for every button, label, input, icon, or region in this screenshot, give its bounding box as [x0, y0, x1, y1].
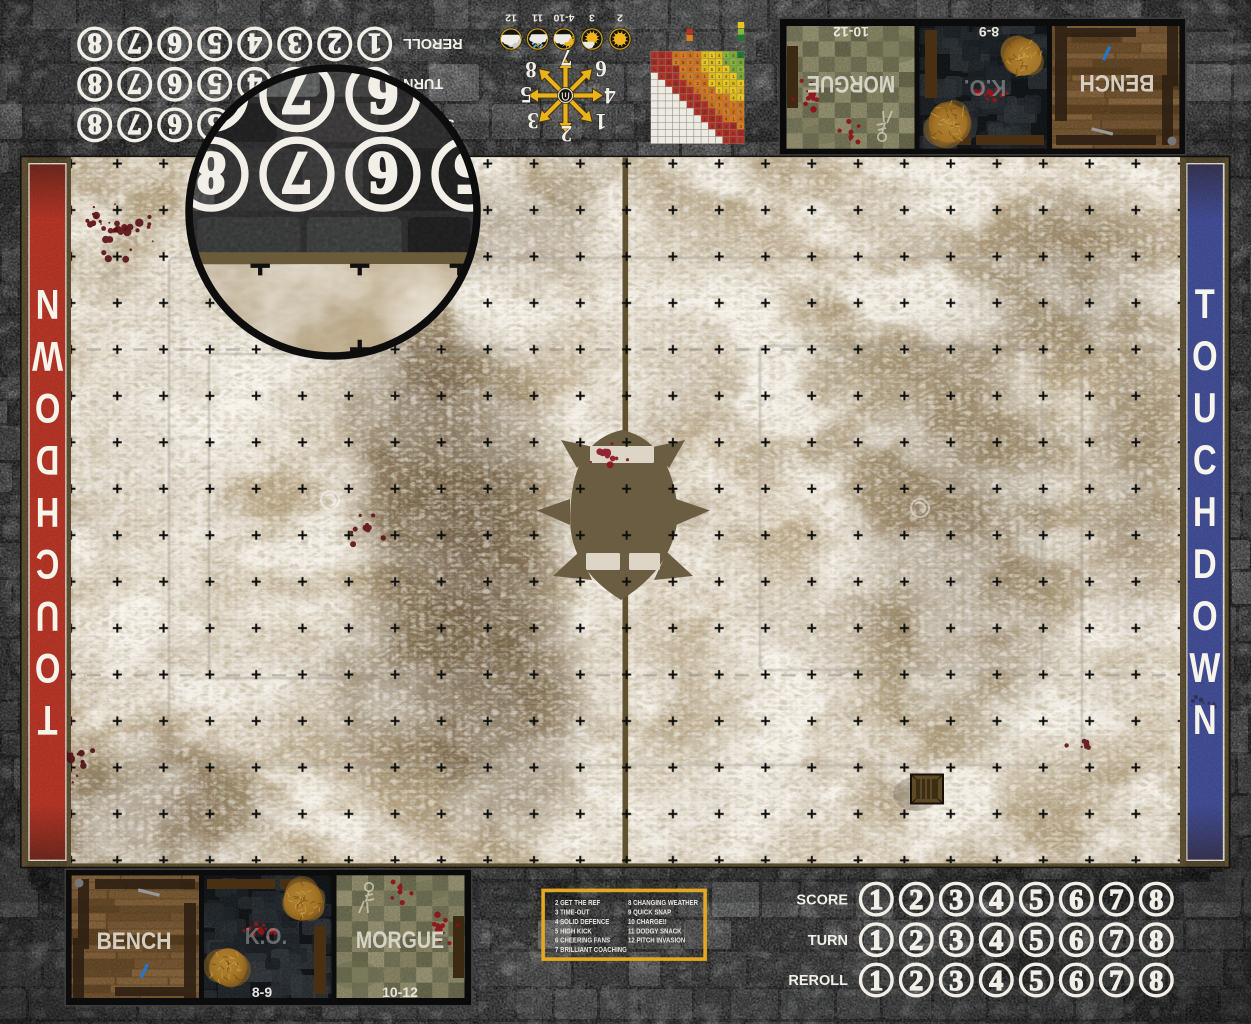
svg-text:1: 1: [682, 95, 685, 100]
svg-text:D: D: [1193, 540, 1217, 587]
svg-text:5: 5: [1029, 885, 1043, 916]
svg-text:SCORE: SCORE: [796, 892, 848, 908]
svg-text:6: 6: [718, 81, 721, 86]
svg-text:3: 3: [703, 103, 706, 108]
svg-text:2: 2: [909, 885, 923, 916]
svg-text:3 TIME-OUT: 3 TIME-OUT: [555, 909, 590, 917]
svg-text:6: 6: [732, 81, 735, 86]
svg-text:6: 6: [725, 103, 728, 108]
svg-text:6: 6: [718, 124, 721, 129]
svg-text:3: 3: [732, 103, 735, 108]
svg-text:8-9: 8-9: [252, 984, 272, 1000]
svg-text:4: 4: [604, 83, 616, 108]
svg-text:5: 5: [725, 110, 728, 115]
svg-text:3: 3: [732, 60, 735, 65]
svg-text:7 BRILLIANT COACHING: 7 BRILLIANT COACHING: [555, 946, 627, 954]
svg-text:4: 4: [739, 74, 742, 79]
svg-text:2: 2: [689, 67, 692, 72]
svg-text:4: 4: [732, 95, 735, 100]
svg-text:3: 3: [739, 81, 742, 86]
svg-text:6: 6: [739, 103, 742, 108]
svg-text:5: 5: [732, 131, 735, 136]
svg-text:2: 2: [561, 121, 573, 146]
svg-text:3: 3: [725, 81, 728, 86]
svg-text:6: 6: [696, 60, 699, 65]
svg-text:6: 6: [711, 103, 714, 108]
svg-text:3: 3: [718, 60, 721, 65]
svg-text:4: 4: [711, 117, 714, 122]
svg-text:5: 5: [668, 67, 671, 72]
svg-text:5: 5: [689, 88, 692, 93]
svg-text:6: 6: [732, 124, 735, 129]
svg-text:2: 2: [660, 67, 663, 72]
svg-text:8: 8: [88, 108, 102, 139]
svg-text:T: T: [38, 697, 58, 744]
svg-text:6: 6: [696, 103, 699, 108]
svg-text:MORGUE: MORGUE: [807, 70, 895, 98]
svg-text:8 CHANGING WEATHER: 8 CHANGING WEATHER: [628, 900, 698, 908]
svg-text:1: 1: [869, 966, 883, 997]
svg-text:6: 6: [739, 60, 742, 65]
svg-text:4 SOLID DEFENCE: 4 SOLID DEFENCE: [555, 918, 610, 926]
svg-text:REROLL: REROLL: [788, 973, 848, 989]
svg-text:W: W: [32, 333, 63, 380]
svg-text:3: 3: [668, 81, 671, 86]
svg-text:1: 1: [711, 95, 714, 100]
svg-text:6: 6: [595, 56, 607, 81]
svg-text:5: 5: [739, 110, 742, 115]
svg-text:5: 5: [725, 67, 728, 72]
svg-text:1: 1: [718, 74, 721, 79]
svg-text:6: 6: [668, 60, 671, 65]
svg-text:3: 3: [711, 124, 714, 129]
svg-text:12: 12: [505, 11, 517, 23]
svg-text:1: 1: [696, 95, 699, 100]
svg-text:4: 4: [703, 95, 706, 100]
svg-text:5: 5: [711, 67, 714, 72]
svg-text:7: 7: [1109, 926, 1123, 957]
svg-text:BENCH: BENCH: [1080, 70, 1155, 98]
svg-text:4: 4: [732, 53, 735, 58]
svg-text:5: 5: [711, 110, 714, 115]
svg-text:D: D: [36, 437, 60, 484]
svg-text:U: U: [1193, 384, 1217, 431]
svg-text:5: 5: [732, 88, 735, 93]
svg-text:6: 6: [168, 68, 182, 99]
svg-text:3: 3: [689, 103, 692, 108]
svg-text:2: 2: [909, 926, 923, 957]
svg-text:C: C: [36, 541, 60, 588]
svg-text:2: 2: [732, 110, 735, 115]
svg-text:3: 3: [660, 60, 663, 65]
svg-text:1: 1: [660, 74, 663, 79]
svg-text:1: 1: [732, 117, 735, 122]
svg-text:1: 1: [725, 95, 728, 100]
svg-text:1: 1: [696, 53, 699, 58]
svg-text:6: 6: [368, 139, 398, 206]
svg-text:4: 4: [718, 53, 721, 58]
svg-text:O: O: [35, 385, 60, 432]
svg-text:1: 1: [869, 885, 883, 916]
svg-text:2: 2: [696, 88, 699, 93]
svg-text:3: 3: [949, 966, 963, 997]
svg-text:3: 3: [949, 885, 963, 916]
svg-text:1: 1: [732, 74, 735, 79]
svg-text:2: 2: [703, 110, 706, 115]
svg-text:10-12: 10-12: [382, 984, 418, 1000]
svg-text:5: 5: [675, 88, 678, 93]
svg-text:2: 2: [682, 88, 685, 93]
svg-text:BENCH: BENCH: [97, 926, 172, 954]
svg-text:6: 6: [711, 60, 714, 65]
svg-text:4: 4: [725, 74, 728, 79]
svg-text:4: 4: [668, 74, 671, 79]
svg-text:2: 2: [725, 131, 728, 136]
svg-text:O: O: [35, 645, 60, 692]
svg-text:U: U: [36, 593, 60, 640]
svg-text:5: 5: [208, 27, 222, 58]
svg-text:5: 5: [1029, 966, 1043, 997]
svg-text:7: 7: [1109, 966, 1123, 997]
svg-text:8: 8: [1149, 926, 1163, 957]
svg-text:7: 7: [561, 45, 573, 70]
svg-text:2: 2: [732, 67, 735, 72]
svg-text:2: 2: [703, 67, 706, 72]
svg-text:3: 3: [675, 60, 678, 65]
svg-text:5: 5: [682, 67, 685, 72]
svg-text:6: 6: [689, 81, 692, 86]
svg-text:5: 5: [653, 67, 656, 72]
svg-text:6: 6: [653, 60, 656, 65]
svg-text:2: 2: [739, 131, 742, 136]
svg-text:7: 7: [128, 108, 142, 139]
svg-text:6: 6: [682, 60, 685, 65]
svg-text:5: 5: [703, 88, 706, 93]
svg-text:4: 4: [660, 53, 663, 58]
svg-text:5: 5: [520, 82, 532, 107]
svg-text:1: 1: [725, 138, 728, 143]
svg-text:O: O: [1192, 592, 1217, 639]
svg-text:5: 5: [739, 67, 742, 72]
svg-text:2: 2: [711, 88, 714, 93]
svg-text:4: 4: [689, 95, 692, 100]
svg-text:6: 6: [168, 27, 182, 58]
svg-text:7: 7: [1109, 885, 1123, 916]
svg-text:1: 1: [682, 53, 685, 58]
svg-text:6: 6: [168, 108, 182, 139]
svg-text:1: 1: [869, 926, 883, 957]
svg-text:4: 4: [675, 53, 678, 58]
svg-text:1: 1: [653, 53, 656, 58]
svg-text:2: 2: [739, 88, 742, 93]
svg-text:W: W: [1189, 644, 1220, 691]
svg-text:8: 8: [1149, 885, 1163, 916]
svg-text:5: 5: [696, 67, 699, 72]
svg-text:5 HIGH KICK: 5 HIGH KICK: [555, 928, 592, 936]
svg-text:7: 7: [128, 68, 142, 99]
svg-text:3: 3: [288, 27, 302, 58]
svg-text:7: 7: [282, 139, 312, 206]
svg-text:5: 5: [718, 88, 721, 93]
svg-text:3: 3: [703, 60, 706, 65]
svg-text:1: 1: [703, 117, 706, 122]
svg-text:TURN: TURN: [808, 933, 848, 949]
svg-text:3: 3: [725, 124, 728, 129]
svg-text:2: 2: [617, 11, 623, 23]
svg-text:4: 4: [718, 95, 721, 100]
svg-text:11: 11: [532, 11, 543, 23]
svg-text:6 CHEERING FANS: 6 CHEERING FANS: [555, 937, 610, 945]
svg-text:1: 1: [739, 138, 742, 143]
svg-text:H: H: [36, 489, 60, 536]
svg-text:2: 2: [328, 27, 342, 58]
svg-text:1: 1: [725, 53, 728, 58]
svg-text:3: 3: [739, 124, 742, 129]
svg-text:4-10: 4-10: [553, 11, 574, 23]
svg-text:5: 5: [208, 68, 222, 99]
svg-text:4: 4: [248, 27, 262, 58]
svg-text:2 GET THE REF: 2 GET THE REF: [555, 900, 600, 908]
svg-text:4: 4: [696, 74, 699, 79]
svg-text:2: 2: [675, 67, 678, 72]
svg-text:1: 1: [675, 74, 678, 79]
svg-text:12 PITCH INVASION: 12 PITCH INVASION: [628, 937, 685, 945]
svg-text:9 QUICK SNAP: 9 QUICK SNAP: [628, 909, 672, 917]
svg-text:5: 5: [696, 110, 699, 115]
svg-text:11 DODGY SNACK: 11 DODGY SNACK: [628, 928, 682, 936]
svg-text:REROLL: REROLL: [403, 35, 463, 51]
svg-text:4: 4: [725, 117, 728, 122]
svg-text:5: 5: [718, 131, 721, 136]
svg-text:4: 4: [989, 926, 1003, 957]
svg-text:6: 6: [703, 81, 706, 86]
svg-text:1: 1: [668, 53, 671, 58]
svg-text:C: C: [1193, 436, 1217, 483]
svg-text:4: 4: [703, 53, 706, 58]
svg-text:1: 1: [689, 74, 692, 79]
svg-text:MORGUE: MORGUE: [356, 926, 444, 954]
svg-text:6: 6: [725, 60, 728, 65]
svg-text:N: N: [36, 281, 60, 328]
svg-text:K.O.: K.O.: [964, 75, 1007, 101]
svg-text:1: 1: [739, 95, 742, 100]
svg-text:1: 1: [368, 27, 382, 58]
svg-text:10 CHARGE!!: 10 CHARGE!!: [628, 918, 667, 926]
svg-text:H: H: [1193, 488, 1217, 535]
svg-text:2: 2: [909, 966, 923, 997]
svg-text:6: 6: [675, 81, 678, 86]
svg-text:8: 8: [525, 57, 537, 82]
svg-text:O: O: [1192, 332, 1217, 379]
svg-text:5: 5: [1029, 926, 1043, 957]
svg-text:4: 4: [732, 138, 735, 143]
svg-text:3: 3: [711, 81, 714, 86]
svg-text:3: 3: [689, 60, 692, 65]
svg-text:1: 1: [711, 53, 714, 58]
svg-text:4: 4: [989, 966, 1003, 997]
svg-text:7: 7: [128, 27, 142, 58]
svg-text:3: 3: [696, 81, 699, 86]
svg-text:4: 4: [739, 117, 742, 122]
svg-text:8: 8: [88, 27, 102, 58]
svg-text:1: 1: [595, 109, 607, 134]
svg-text:N: N: [1193, 696, 1217, 743]
svg-text:4: 4: [689, 53, 692, 58]
svg-text:4: 4: [711, 74, 714, 79]
svg-text:8: 8: [88, 68, 102, 99]
svg-text:3: 3: [589, 11, 595, 23]
svg-text:4: 4: [682, 74, 685, 79]
svg-text:6: 6: [1069, 885, 1083, 916]
svg-text:6: 6: [1069, 966, 1083, 997]
svg-text:K.O.: K.O.: [245, 923, 288, 949]
svg-text:3: 3: [718, 103, 721, 108]
svg-text:3: 3: [949, 926, 963, 957]
svg-text:3: 3: [527, 108, 539, 133]
svg-text:3: 3: [682, 81, 685, 86]
svg-text:8-9: 8-9: [979, 24, 999, 40]
svg-text:1: 1: [718, 117, 721, 122]
svg-text:2: 2: [725, 88, 728, 93]
svg-text:2: 2: [718, 110, 721, 115]
svg-text:8: 8: [1149, 966, 1163, 997]
svg-text:1: 1: [739, 53, 742, 58]
svg-text:2: 2: [718, 67, 721, 72]
svg-text:10-12: 10-12: [833, 24, 869, 40]
svg-text:1: 1: [703, 74, 706, 79]
svg-text:T: T: [1195, 280, 1215, 327]
svg-text:6: 6: [1069, 926, 1083, 957]
svg-text:4: 4: [989, 885, 1003, 916]
